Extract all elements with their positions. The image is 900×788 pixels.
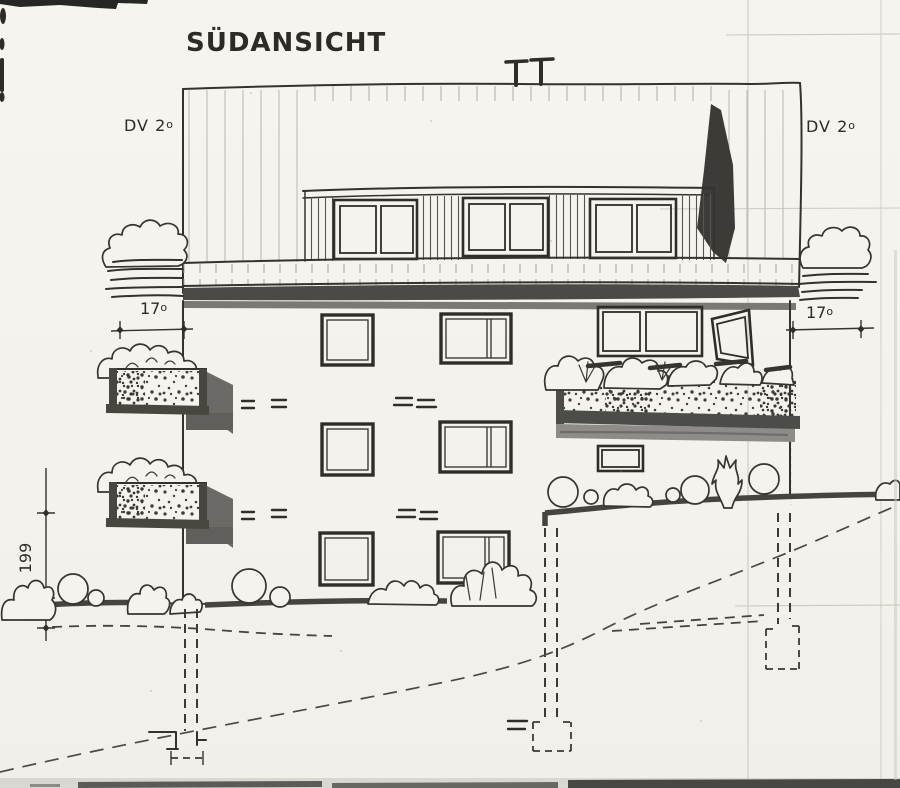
- planter-plants: [545, 356, 794, 390]
- roof-label-right: DV 2o: [806, 117, 856, 136]
- bush: [58, 574, 88, 604]
- subgrade: [0, 505, 899, 772]
- dormer-siding: [548, 195, 590, 259]
- bush: [681, 476, 709, 504]
- basement-window: [598, 446, 643, 471]
- scanned-drawing-page: 17o 17o 199 5o: [0, 0, 900, 788]
- bush: [270, 587, 290, 607]
- plant-clump: [128, 585, 170, 614]
- dim-label-height: 199: [16, 543, 35, 574]
- roof-label-left: DV 2o: [124, 116, 174, 135]
- bush: [88, 590, 104, 606]
- fascia-dark-band: [183, 284, 800, 300]
- attic-window-pair-3: [590, 199, 676, 258]
- facade-window-a2: [322, 424, 373, 475]
- chimney: [506, 59, 553, 85]
- roof-seams-left: [184, 90, 304, 262]
- foundation-center: [508, 528, 571, 751]
- balcony-underside: [186, 413, 233, 430]
- dim-label: 17o: [140, 299, 167, 318]
- roof-ridge-ticks: [310, 86, 712, 103]
- facade: [183, 301, 790, 601]
- bush: [584, 490, 598, 504]
- grade-reference-dashed: [52, 626, 332, 636]
- dim-label: 17o: [806, 303, 833, 322]
- dormer-band: [303, 187, 714, 261]
- eave-fascia: [183, 258, 800, 310]
- terrain-dashed-line: [0, 505, 899, 772]
- south-elevation-drawing: 17o 17o 199 5o: [0, 0, 900, 788]
- bush: [749, 464, 779, 494]
- plant-clump: [368, 581, 439, 605]
- dimension-balcony-right: 17o: [786, 303, 874, 339]
- bush: [666, 488, 680, 502]
- dormer-siding: [676, 194, 714, 260]
- dormer-siding: [417, 196, 463, 260]
- bush: [548, 477, 578, 507]
- facade-window-b1: [441, 314, 511, 363]
- balcony-right: [545, 307, 800, 471]
- plant-clump: [604, 484, 653, 507]
- dormer-fascia-top: [303, 187, 714, 191]
- foundation-left: [149, 609, 206, 765]
- hedge-left: [103, 220, 188, 297]
- plant-clump: [2, 581, 56, 621]
- facade-window-a3: [320, 533, 373, 585]
- fascia-shadow-band: [183, 301, 796, 310]
- balcony-left-1: [98, 344, 233, 434]
- repetition-marks: [242, 398, 437, 519]
- balcony-left-2: [98, 458, 233, 548]
- attic-window-pair-1: [334, 200, 417, 259]
- facade-window-b2: [440, 422, 511, 472]
- balcony-doors: [598, 307, 753, 365]
- foundation-right: [612, 513, 799, 669]
- bush: [232, 569, 266, 603]
- drawing-title: SÜDANSICHT: [186, 25, 386, 58]
- hedge-right: [799, 227, 876, 300]
- dormer-siding: [305, 197, 334, 261]
- attic-window-pair-2: [463, 198, 548, 256]
- dimension-balcony-left: 17o: [111, 299, 193, 339]
- facade-window-a1: [322, 315, 373, 365]
